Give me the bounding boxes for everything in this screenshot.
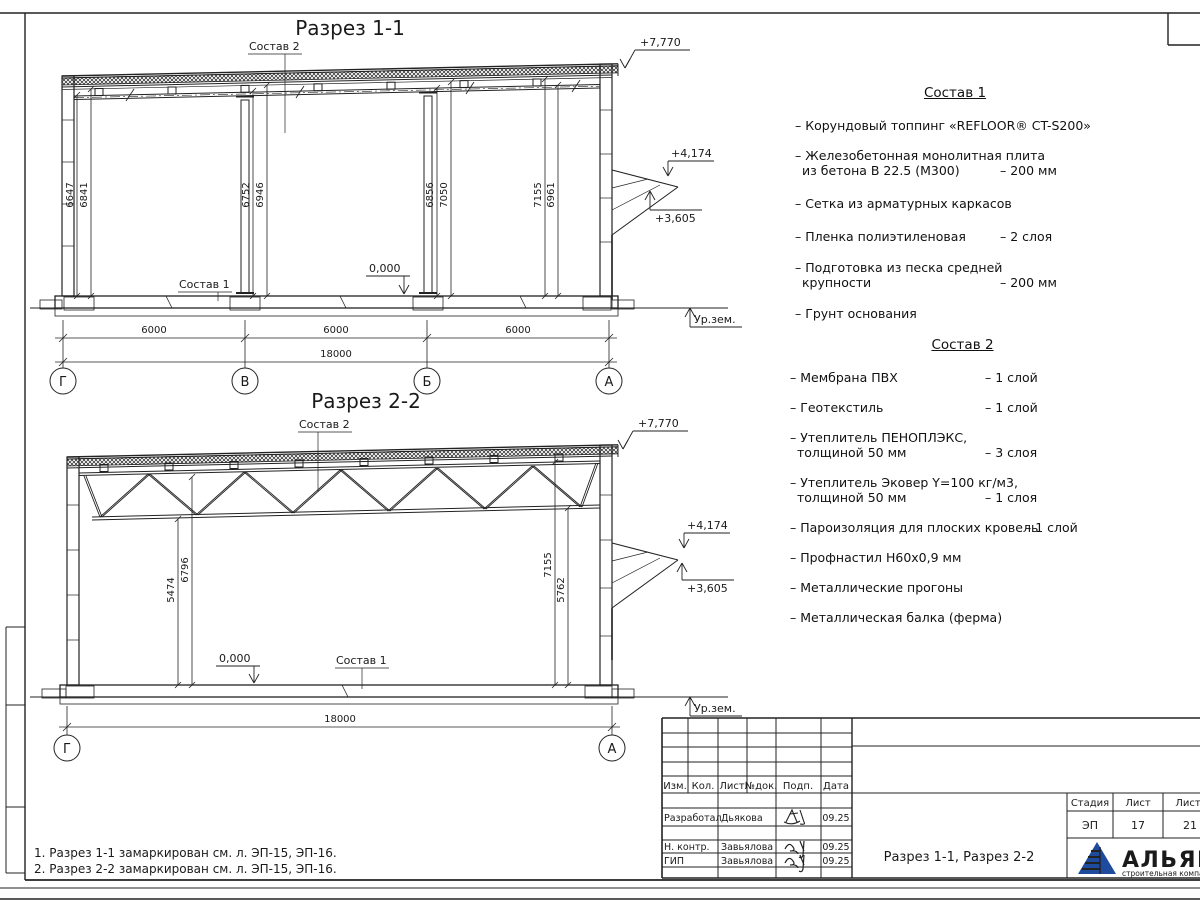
stamp-h-doc: №док. xyxy=(745,781,778,792)
section-2-2-drawing: 5474 6796 7155 5762 18000 Г А xyxy=(30,389,742,761)
section-1-1-drawing: 6647 6841 6752 6946 6856 7050 7155 6961 … xyxy=(30,16,742,394)
title-block: Изм. Кол. Лист №док. Подп. Дата Разработ… xyxy=(662,718,1200,878)
notes: 1. Разрез 1-1 замаркирован см. л. ЭП-15,… xyxy=(34,846,337,876)
s2-axis-g: Г xyxy=(63,742,71,757)
s2-axis-a: А xyxy=(608,742,617,757)
s2-elev-3605: +3,605 xyxy=(687,582,728,595)
stamp-h-podp: Подп. xyxy=(783,781,813,792)
s1-elev-3605: +3,605 xyxy=(655,212,696,225)
list-item: – Утеплитель ПЕНОПЛЭКС,толщиной 50 мм– 3… xyxy=(790,430,1200,460)
stamp-doc-title: Разрез 1-1, Разрез 2-2 xyxy=(884,850,1035,865)
s1-axis-a: А xyxy=(605,375,614,390)
stamp-date-2: 09.25 xyxy=(822,842,849,853)
list-item: – Корундовый топпинг «REFLOOR® CT-S200» xyxy=(795,118,1200,133)
list-item: – Профнастил Н60х0,9 мм xyxy=(790,550,1200,565)
company-logo-icon xyxy=(1078,842,1116,874)
elev-7770-2-2 xyxy=(618,431,688,449)
elev-0000-1-1 xyxy=(366,276,410,294)
sostav-1-list: Состав 1 – Корундовый топпинг «REFLOOR® … xyxy=(795,86,1200,336)
stamp-h-data: Дата xyxy=(823,781,849,792)
note-1: 1. Разрез 1-1 замаркирован см. л. ЭП-15,… xyxy=(34,846,337,860)
s1-span3: 6000 xyxy=(505,325,530,336)
stamp-h-kol: Кол. xyxy=(692,781,715,792)
stamp-name-1: Дьякова xyxy=(721,813,763,824)
s2-total: 18000 xyxy=(324,714,356,725)
list-item: – Грунт основания xyxy=(795,306,1200,321)
s2-elev-7770: +7,770 xyxy=(638,417,679,430)
stamp-name-2: Завьялова xyxy=(721,842,773,853)
s1-sostav1-label: Состав 1 xyxy=(179,278,230,291)
vertical-dims-1-1 xyxy=(74,76,561,299)
s2-title: Разрез 2-2 xyxy=(311,389,421,413)
foundation-pads-2-2 xyxy=(42,686,634,698)
stamp-h-izm: Изм. xyxy=(663,781,687,792)
s1-ground-label: Ур.зем. xyxy=(694,313,736,326)
s1-span2: 6000 xyxy=(323,325,348,336)
company-subtitle: строительная компания xyxy=(1122,869,1200,878)
list-item: – Мембрана ПВХ– 1 слой xyxy=(790,370,1200,385)
s2-dim-6796: 6796 xyxy=(180,557,191,582)
s2-dim-5762: 5762 xyxy=(556,577,567,602)
elev-0000-2-2 xyxy=(216,666,260,683)
stamp-list-value: 17 xyxy=(1131,819,1145,832)
s1-dim-7050: 7050 xyxy=(439,182,450,207)
s1-axis-b: Б xyxy=(423,375,432,390)
s1-elev-7770: +7,770 xyxy=(640,36,681,49)
stamp-h-list: Лист xyxy=(719,781,745,792)
s2-elev-4174: +4,174 xyxy=(687,519,728,532)
s1-axis-v: В xyxy=(241,375,250,390)
axes-2-2 xyxy=(54,735,625,761)
list-item: – Утеплитель Эковер Y=100 кг/м3,толщиной… xyxy=(790,475,1200,505)
canopy-1-1 xyxy=(612,170,678,300)
list-item: – Металлические прогоны xyxy=(790,580,1200,595)
signature-2 xyxy=(785,841,804,858)
list-item: – Железобетонная монолитная плитаиз бето… xyxy=(795,148,1200,178)
elev-3605-1-1 xyxy=(645,191,702,210)
s1-dim-6752: 6752 xyxy=(241,182,252,207)
s1-dim-6856: 6856 xyxy=(425,182,436,207)
s2-dim-5474: 5474 xyxy=(166,577,177,602)
s1-elev-0000: 0,000 xyxy=(369,262,401,275)
list-item: – Сетка из арматурных каркасов xyxy=(795,196,1200,211)
s1-total: 18000 xyxy=(320,349,352,360)
canopy-2-2 xyxy=(612,543,678,660)
stamp-role-2: Н. контр. xyxy=(664,842,710,853)
list-item: – Подготовка из песка среднейкрупности– … xyxy=(795,260,1200,290)
stamp-stage-value: ЭП xyxy=(1082,819,1098,832)
s1-dim-6841: 6841 xyxy=(79,182,90,207)
list-item: – Металлическая балка (ферма) xyxy=(790,610,1200,625)
sostav-2-list: Состав 2 – Мембрана ПВХ– 1 слой – Геотек… xyxy=(790,338,1200,640)
s1-elev-4174: +4,174 xyxy=(671,147,712,160)
s1-sostav2-label: Состав 2 xyxy=(249,40,300,53)
stamp-role-1: Разработал xyxy=(664,813,722,824)
signature-1 xyxy=(784,810,805,824)
note-2: 2. Разрез 2-2 замаркирован см. л. ЭП-15,… xyxy=(34,862,337,876)
s1-dim-7155: 7155 xyxy=(533,182,544,207)
stamp-listov-h: Листов xyxy=(1175,798,1200,809)
s2-dim-7155: 7155 xyxy=(543,552,554,577)
stamp-list-h: Лист xyxy=(1125,798,1151,809)
s1-axis-g: Г xyxy=(59,375,67,390)
s2-sostav2-label: Состав 2 xyxy=(299,418,350,431)
elev-3605-2-2 xyxy=(677,563,734,580)
sostav-2-title: Состав 2 xyxy=(790,338,1135,353)
sostav-1-title: Состав 1 xyxy=(795,86,1115,101)
stamp-role-3: ГИП xyxy=(664,856,684,867)
s1-span1: 6000 xyxy=(141,325,166,336)
stamp-date-1: 09.25 xyxy=(822,813,849,824)
s1-dim-6946: 6946 xyxy=(255,182,266,207)
s1-dim-6647: 6647 xyxy=(65,182,76,207)
s1-title: Разрез 1-1 xyxy=(295,16,405,40)
s2-sostav1-label: Состав 1 xyxy=(336,654,387,667)
stamp-name-3: Завьялова xyxy=(721,856,773,867)
s1-dim-6961: 6961 xyxy=(546,182,557,207)
list-item: – Пленка полиэтиленовая– 2 слоя xyxy=(795,229,1200,244)
list-item: – Геотекстиль– 1 слой xyxy=(790,400,1200,415)
s2-elev-0000: 0,000 xyxy=(219,652,251,665)
stamp-listov-value: 21 xyxy=(1183,819,1197,832)
truss-2-2 xyxy=(79,461,600,520)
drawing-sheet: 6647 6841 6752 6946 6856 7050 7155 6961 … xyxy=(0,0,1200,900)
s2-ground-label: Ур.зем. xyxy=(694,702,736,715)
elev-4174-2-2 xyxy=(679,533,730,548)
stamp-date-3: 09.25 xyxy=(822,856,849,867)
list-item: – Пароизоляция для плоских кровель– 1 сл… xyxy=(790,520,1200,535)
stamp-stage-h: Стадия xyxy=(1071,798,1109,809)
elev-4174-1-1 xyxy=(663,161,714,176)
columns-1-1 xyxy=(236,93,437,294)
elev-7770-1-1 xyxy=(620,50,690,68)
signature-3 xyxy=(785,855,804,872)
